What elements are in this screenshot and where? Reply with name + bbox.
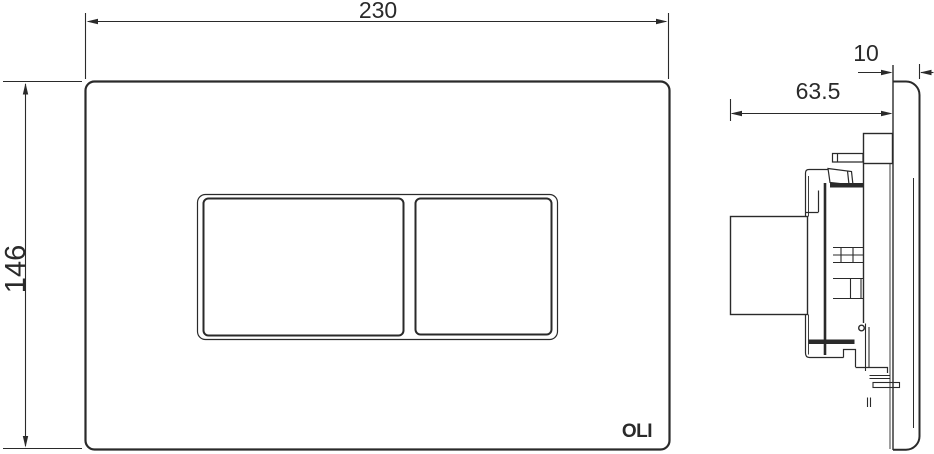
oli-logo: OLI [622, 421, 652, 442]
left-flush-button [204, 199, 404, 336]
valve-housing-box [731, 217, 808, 315]
dim-arrow-left-icon [87, 19, 99, 24]
mounting-arm [833, 154, 864, 163]
dim-arrow-thickness-right-icon [920, 70, 932, 75]
dim-arrow-bottom-icon [23, 436, 28, 448]
thickness-dimension-label: 10 [853, 40, 879, 66]
plate-profile [893, 82, 920, 450]
depth-dimension-label: 63.5 [796, 78, 841, 104]
right-flush-button [416, 199, 552, 335]
top-perspective-block [828, 169, 853, 186]
mounting-frame [806, 134, 893, 450]
clip-pivot-circle [859, 325, 865, 331]
bottom-fixings [868, 376, 891, 408]
front-view-drawing: 230 146 OLI [0, 0, 700, 454]
shelf-band-lower [809, 340, 855, 345]
dim-arrow-right-icon [656, 19, 668, 24]
width-dimension-label: 230 [359, 0, 397, 23]
mid-clip [833, 248, 864, 263]
dim-arrow-depth-left-icon [731, 111, 743, 116]
height-dimension-label: 146 [0, 245, 32, 293]
upper-bracket-block [864, 134, 893, 164]
shelf-band-upper [830, 183, 864, 188]
thickness-dimension [858, 64, 934, 79]
side-view-drawing: 10 63.5 [700, 0, 934, 454]
dim-arrow-depth-right-icon [881, 111, 893, 116]
frame-step-notch [806, 191, 819, 213]
dim-arrow-thickness-left-icon [881, 70, 893, 75]
lower-clip [833, 279, 864, 299]
dim-arrow-top-icon [23, 83, 28, 95]
bottom-screw-block [873, 383, 900, 388]
technical-drawing-canvas: 230 146 OLI 10 [0, 0, 934, 454]
bottom-clip [866, 324, 870, 372]
clip-details [833, 248, 900, 408]
